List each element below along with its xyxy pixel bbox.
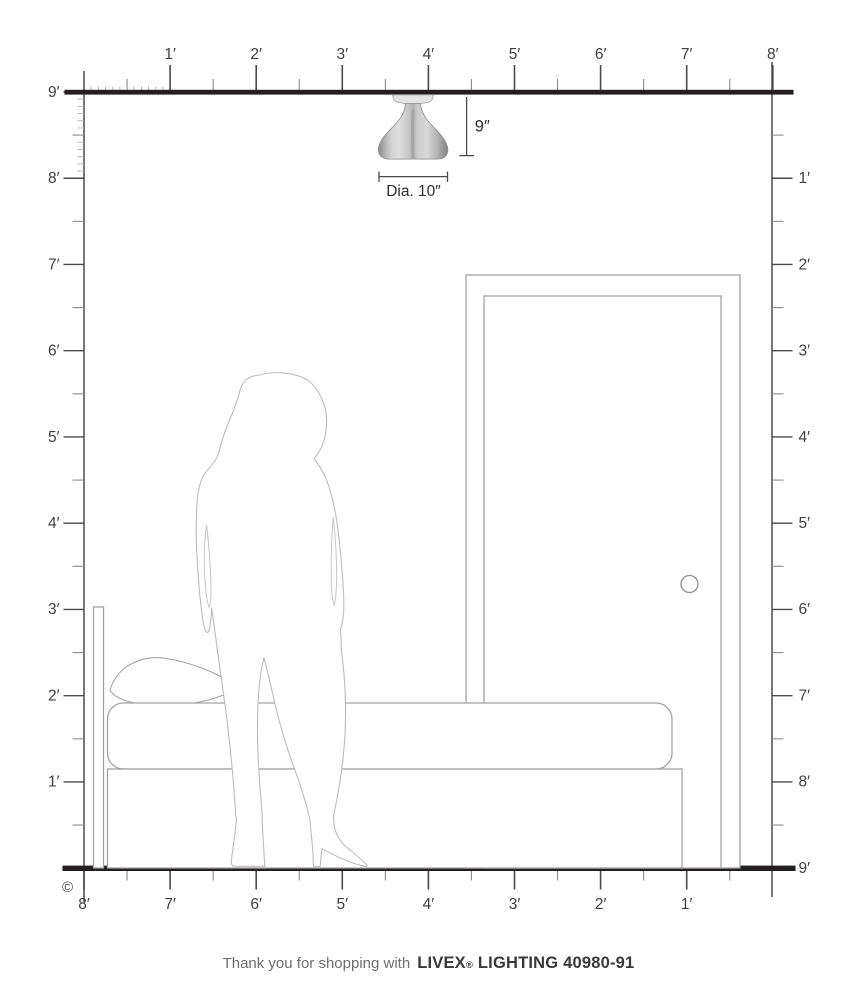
- ruler-label: 6′: [250, 896, 262, 913]
- bed-base: [108, 769, 683, 868]
- footer-caption: Thank you for shopping with LIVEX ® LIGH…: [0, 954, 857, 973]
- brand-name: LIVEX: [417, 954, 466, 973]
- pillow: [110, 658, 236, 706]
- ruler-label: 3′: [509, 896, 521, 913]
- height-label: 9″: [475, 118, 490, 136]
- ruler-label: 5′: [509, 46, 521, 63]
- ruler-label: 5′: [48, 429, 60, 446]
- ruler-label: 6′: [595, 46, 607, 63]
- ruler-label: 3′: [799, 343, 811, 360]
- ruler-label: 1′: [799, 170, 811, 187]
- light-fixture: [378, 95, 448, 159]
- ruler-label: 9′: [799, 860, 811, 877]
- ruler-label: 6′: [799, 601, 811, 618]
- ruler-label: 8′: [78, 896, 90, 913]
- diameter-dimension: Dia. 10″: [379, 172, 448, 201]
- ruler-label: 7′: [164, 896, 176, 913]
- height-dimension: 9″: [459, 97, 490, 156]
- ruler-label: 3′: [48, 601, 60, 618]
- ruler-label: 7′: [799, 687, 811, 704]
- ruler-label: 8′: [48, 170, 60, 187]
- ruler-label: 2′: [799, 256, 811, 273]
- footer-text: Thank you for shopping with: [223, 955, 411, 972]
- ruler-label: 2′: [48, 687, 60, 704]
- ruler-label: 5′: [337, 896, 349, 913]
- door-knob: [681, 576, 698, 593]
- ruler-label: 4′: [48, 515, 60, 532]
- ruler-label: 8′: [799, 774, 811, 791]
- product-dimension-diagram: 1′2′3′4′5′6′7′8′ 9′8′7′6′5′4′3′2′1′ 1′2′…: [0, 0, 857, 1000]
- ruler-label: 6′: [48, 343, 60, 360]
- mattress: [108, 703, 673, 769]
- copyright-symbol: ©: [62, 879, 73, 896]
- ruler-label: 7′: [48, 256, 60, 273]
- product-number: LIGHTING 40980-91: [478, 954, 635, 973]
- ruler-label: 4′: [423, 46, 435, 63]
- ruler-label: 9′: [48, 84, 60, 101]
- ruler-label: 4′: [423, 896, 435, 913]
- ruler-label: 3′: [337, 46, 349, 63]
- left-ruler: 9′8′7′6′5′4′3′2′1′: [48, 84, 84, 825]
- ruler-label: 5′: [799, 515, 811, 532]
- ruler-label: 8′: [767, 46, 779, 63]
- ruler-label: 2′: [250, 46, 262, 63]
- ruler-label: 1′: [48, 774, 60, 791]
- ruler-label: 1′: [681, 896, 693, 913]
- headboard-post: [94, 607, 104, 868]
- ceiling-line: [65, 90, 794, 95]
- top-ruler: 1′2′3′4′5′6′7′8′: [91, 46, 778, 93]
- ruler-label: 1′: [164, 46, 176, 63]
- ruler-label: 7′: [681, 46, 693, 63]
- ruler-label: 4′: [799, 429, 811, 446]
- fixture-canopy: [393, 95, 434, 104]
- registered-trademark-symbol: ®: [466, 960, 473, 971]
- scene-canvas: 1′2′3′4′5′6′7′8′ 9′8′7′6′5′4′3′2′1′ 1′2′…: [0, 0, 857, 1000]
- diameter-label: Dia. 10″: [386, 183, 441, 200]
- right-ruler: 1′2′3′4′5′6′7′8′9′: [772, 135, 810, 877]
- ruler-label: 2′: [595, 896, 607, 913]
- bottom-ruler: 8′7′6′5′4′3′2′1′: [78, 871, 730, 913]
